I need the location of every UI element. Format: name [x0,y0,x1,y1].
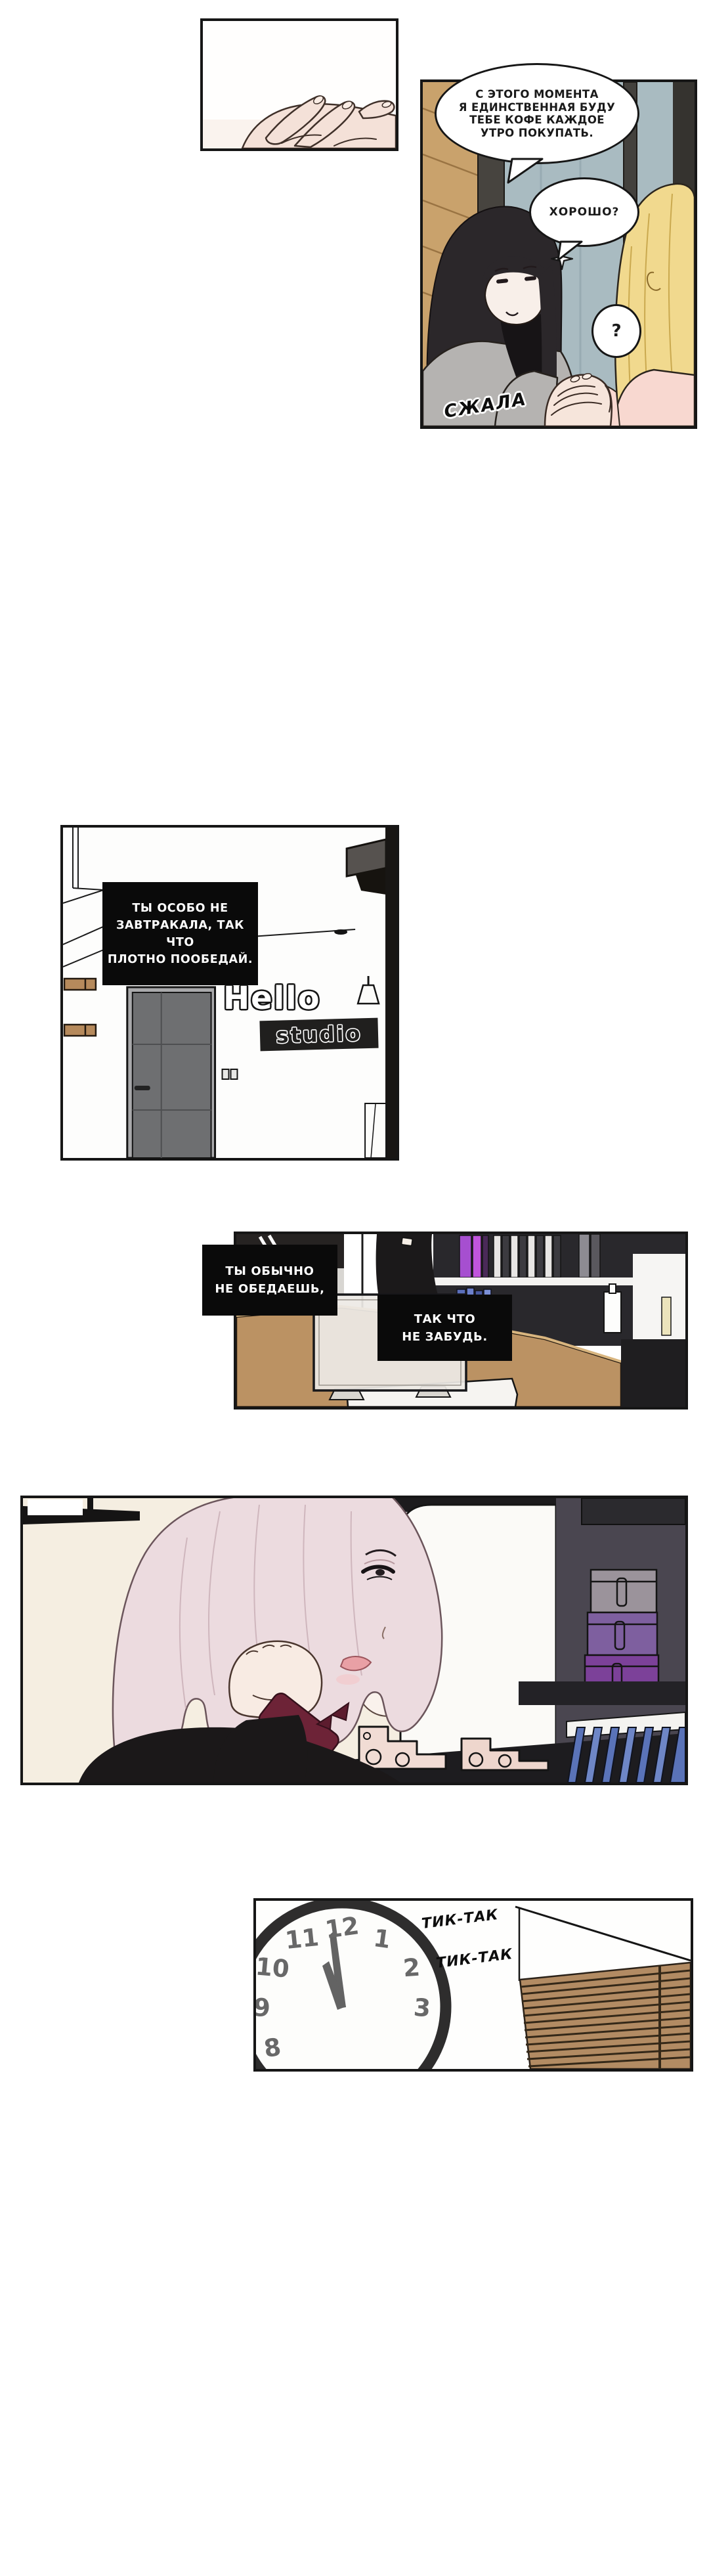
shelf-board [519,1681,685,1705]
narration-box-lunch-1: ТЫ ОБЫЧНО НЕ ОБЕДАЕШЬ, [202,1245,337,1316]
sign-studio-word: studio [276,1021,362,1048]
panel-phone [20,1496,688,1785]
bubble-question-text: ? [611,321,621,341]
wristwatch [401,1237,412,1246]
speech-bubble-ok-tail [555,240,590,263]
bubble-ok-text: ХОРОШО? [549,206,620,219]
caption-line: НЕ ОБЕДАЕШЬ, [202,1280,337,1298]
clock-number-11: 11 [284,1923,320,1955]
bubble-line: ТЕБЕ КОФЕ КАЖДОЕ [469,114,605,127]
sign-hello-word: Hello [223,980,321,1017]
sign-studio-banner: studio [259,1018,378,1052]
caption-line: ТЫ ОБЫЧНО [202,1262,337,1280]
narration-box-lunch-2: ТАК ЧТО НЕ ЗАБУДЬ. [377,1295,512,1361]
caption-line: ТЫ ОСОБО НЕ [102,900,258,917]
panel-hands [200,18,398,151]
bubble-line: С ЭТОГО МОМЕНТА [475,88,599,101]
bubble-line: Я ЕДИНСТВЕННАЯ БУДУ [459,101,615,114]
storage-boxes [585,1570,658,1696]
caption-line: ТАК ЧТО [377,1310,512,1328]
floor-lamp-base [365,1103,386,1158]
bubble-line: УТРО ПОКУПАТЬ. [481,127,593,140]
narration-box-breakfast: ТЫ ОСОБО НЕ ЗАВТРАКАЛА, ТАК ЧТО ПЛОТНО П… [102,882,258,985]
clock-number-9: 9 [253,1994,270,2022]
webtoon-page: С ЭТОГО МОМЕНТА Я ЕДИНСТВЕННАЯ БУДУ ТЕБЕ… [0,0,709,2576]
phone-call-artwork [23,1498,685,1783]
clock-number-10: 10 [254,1952,290,1983]
panel-studio: Hello studio ТЫ ОСОБО НЕ ЗАВТРАКАЛА, ТАК… [60,825,399,1161]
caption-line: ПЛОТНО ПООБЕДАЙ. [102,951,258,968]
caption-line: ЗАВТРАКАЛА, ТАК ЧТО [102,917,258,951]
hands-artwork [203,21,396,148]
panel-clock: 12 1 2 3 8 9 10 11 ТИК-ТАК ТИК-ТАК [253,1898,693,2072]
door-handle [135,1086,150,1090]
speech-bubble-main: С ЭТОГО МОМЕНТА Я ЕДИНСТВЕННАЯ БУДУ ТЕБЕ… [435,63,639,164]
speech-bubble-ok: ХОРОШО? [529,177,639,247]
caption-line: НЕ ЗАБУДЬ. [377,1328,512,1346]
speech-bubble-question: ? [591,304,641,358]
right-dark-column [385,828,397,1158]
clock-number-2: 2 [402,1953,421,1983]
speech-bubble-main-tail [505,158,551,185]
clock-number-12: 12 [324,1911,361,1944]
studio-door [127,987,215,1158]
clock-number-3: 3 [413,1993,432,2023]
